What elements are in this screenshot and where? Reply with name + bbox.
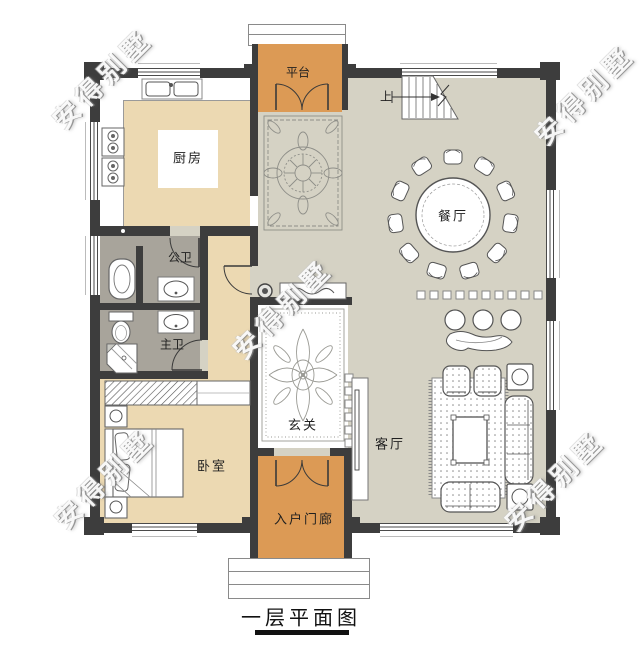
nightstand (105, 497, 127, 518)
bathtub (109, 259, 135, 299)
bathroom-sink (158, 277, 194, 301)
hall-console-table (280, 283, 346, 299)
kitchen-sink (142, 79, 202, 99)
armchair (443, 366, 470, 396)
stools (445, 310, 521, 330)
room-label-porch: 入户门廊 (274, 509, 334, 528)
staircase (392, 76, 458, 119)
room-label-foyer: 玄关 (288, 415, 318, 434)
partition-screen-row (417, 291, 542, 299)
bed (105, 429, 183, 497)
loveseat (441, 482, 500, 512)
kitchen-stove (102, 128, 124, 186)
tv-cabinet (352, 378, 368, 500)
page-title: 一层平面图 (241, 602, 361, 631)
room-label-bedroom: 卧室 (197, 456, 227, 475)
floorplan-drawing (0, 0, 640, 666)
room-label-living: 客厅 (375, 434, 405, 453)
armchair (474, 366, 501, 396)
wardrobe (105, 381, 250, 405)
floor-plan-page: 平台 厨房 上 餐厅 公卫 主卫 卧室 玄关 客厅 入户门廊 安得别墅 安得别墅… (0, 0, 640, 666)
room-label-public-bath: 公卫 (168, 249, 192, 266)
room-label-kitchen: 厨房 (173, 148, 203, 167)
title-underline (255, 630, 349, 635)
foyer-tile-pattern (264, 116, 342, 230)
shower (107, 344, 137, 373)
side-table (507, 364, 533, 390)
wall-cistern (117, 227, 129, 236)
sofa (505, 396, 533, 484)
console-bench (446, 332, 512, 351)
room-label-master-bath: 主卫 (160, 336, 184, 353)
room-label-platform: 平台 (286, 64, 310, 81)
room-label-dining: 餐厅 (438, 206, 468, 225)
nightstand (105, 406, 127, 427)
stairs-up-label: 上 (380, 88, 392, 105)
bathroom-sink (158, 311, 194, 333)
toilet (109, 312, 133, 343)
side-table (507, 484, 533, 510)
potted-plant (258, 284, 272, 298)
coffee-table (451, 415, 489, 465)
